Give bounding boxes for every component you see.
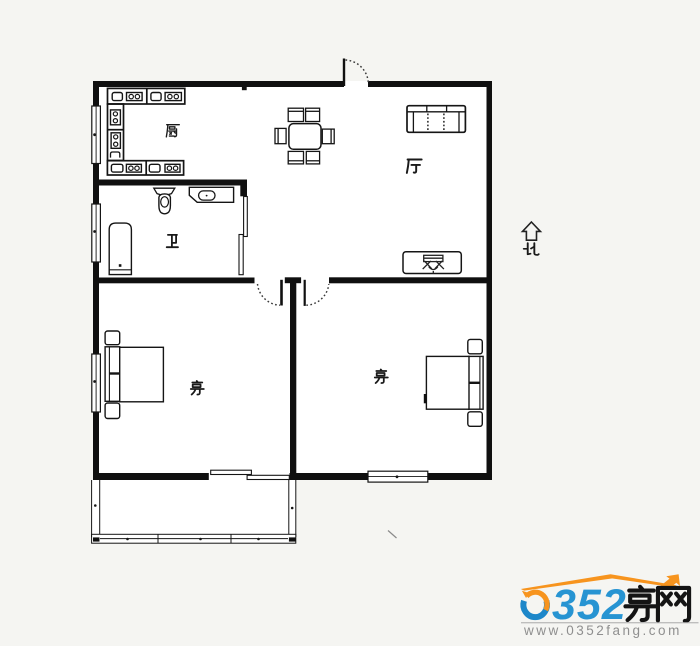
svg-text:www.0352fang.com: www.0352fang.com [523,623,682,638]
svg-text:352: 352 [552,581,627,629]
